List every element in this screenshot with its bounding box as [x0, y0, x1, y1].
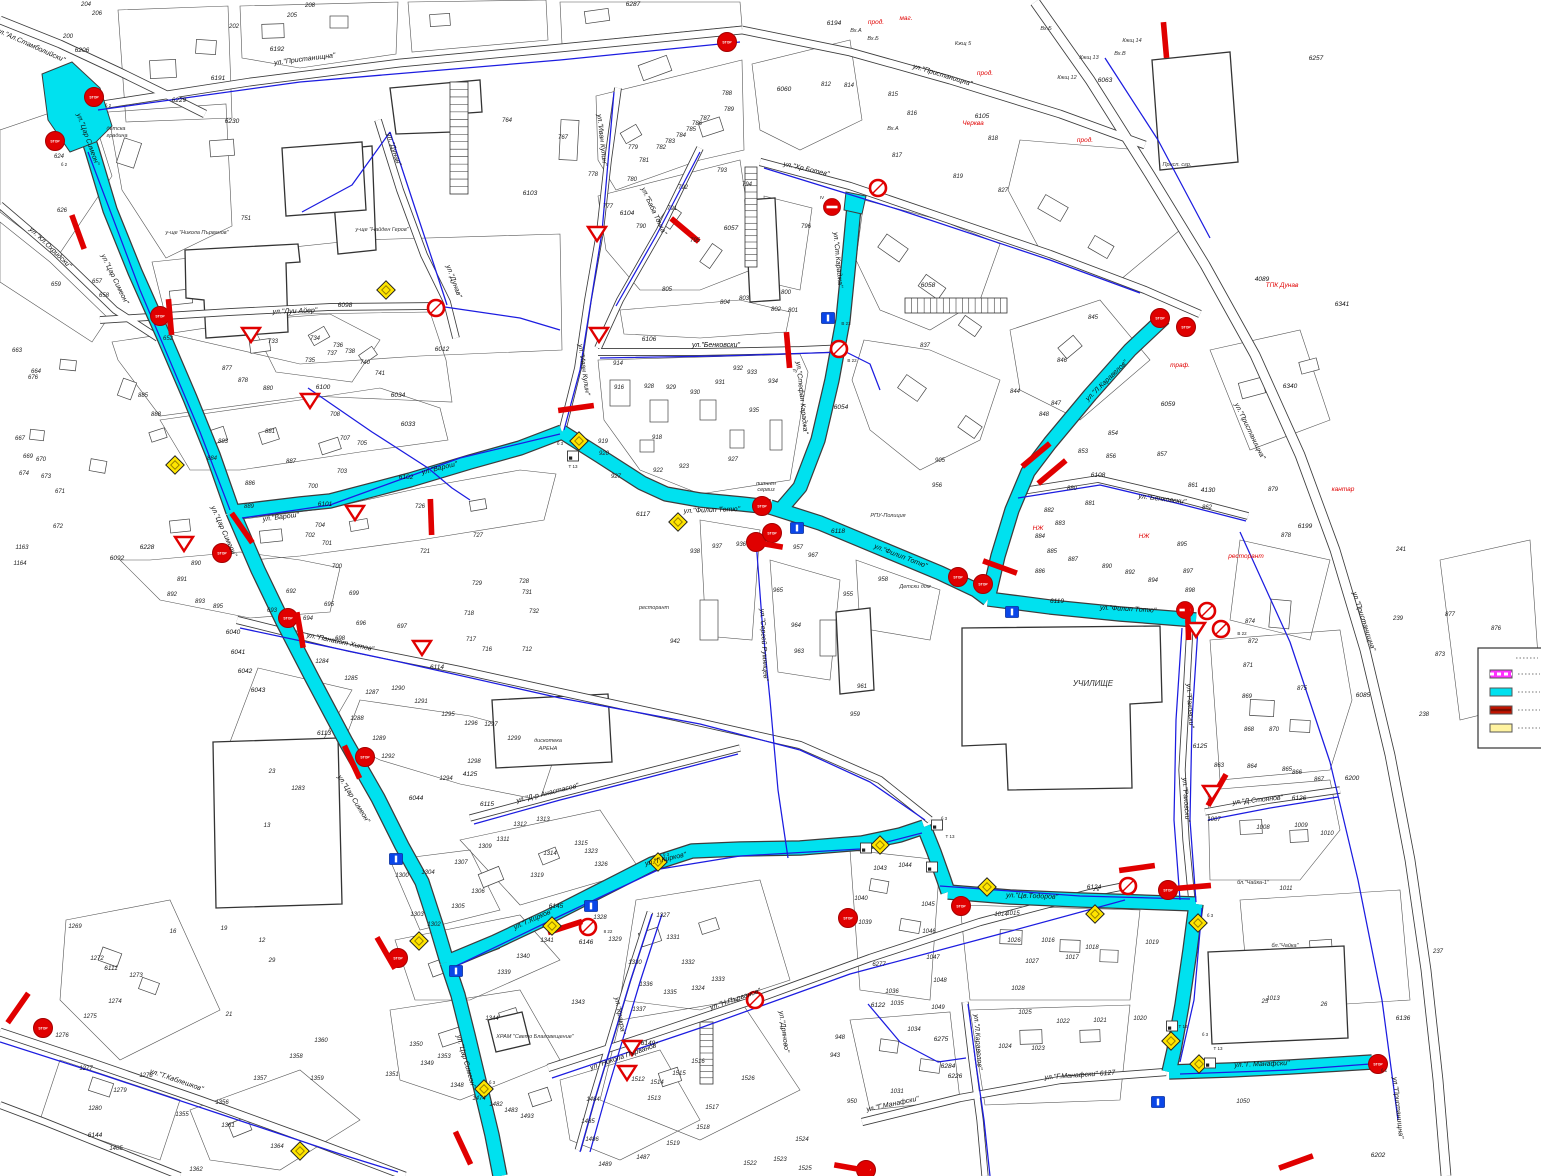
cadastral-code-label: 6034 — [391, 392, 406, 399]
stop-sign-icon: STOP — [34, 1019, 53, 1038]
parcel-number-label: 1512 — [631, 1077, 645, 1083]
parcel-number-label: 1272 — [90, 956, 104, 962]
parcel-number-label: 857 — [1157, 452, 1168, 458]
parcel-number-label: 927 — [728, 457, 739, 463]
parcel-block — [190, 1070, 360, 1170]
sign-annotation-label: б 3 — [941, 816, 948, 821]
cadastral-code-label: 6257 — [1309, 55, 1324, 62]
parcel-number-label: 819 — [953, 174, 964, 180]
cadastral-code-label: 6341 — [1335, 301, 1350, 308]
cadastral-code-label: 6191 — [211, 75, 226, 82]
parcel-number-label: 717 — [466, 637, 477, 643]
cadastral-code-label: 6057 — [724, 225, 739, 232]
building — [770, 420, 782, 450]
parcel-number-label: 781 — [639, 158, 649, 164]
parcel-number-label: 893 — [195, 599, 206, 605]
sign-annotation-label: Т 13 — [568, 464, 578, 469]
road-closure-bar-icon — [1278, 1153, 1314, 1171]
parcel-number-label: 882 — [1044, 508, 1055, 514]
parcel-number-label: 731 — [522, 590, 532, 596]
cadastral-code-label: 6113 — [317, 730, 331, 737]
cadastral-code-label: 6102 — [399, 474, 414, 481]
parcel-number-label: 1285 — [344, 676, 358, 682]
parcel-number-label: 965 — [773, 588, 784, 594]
parcel-number-label: 1514 — [650, 1080, 664, 1086]
large-building — [1208, 946, 1348, 1044]
poi-label: Кжщ 14 — [1122, 38, 1141, 44]
poi-label: градина — [106, 133, 127, 139]
parcel-number-label: 1025 — [1018, 1010, 1032, 1016]
parcel-number-label: 1364 — [270, 1144, 284, 1150]
parcel-number-label: 751 — [241, 216, 251, 222]
parcel-number-label: 816 — [907, 111, 918, 117]
parcel-number-label: 878 — [238, 378, 249, 384]
svg-text:STOP: STOP — [1163, 888, 1173, 892]
cadastral-code-label: 6194 — [827, 20, 842, 27]
poi-label: Кжщ 5 — [955, 41, 972, 47]
large-building — [282, 142, 366, 216]
utility-marker-icon — [1167, 1021, 1178, 1031]
road-closure-bar-icon — [1161, 22, 1170, 58]
poi-red-label: Черква — [962, 120, 984, 127]
parcel-number-label: 671 — [55, 489, 65, 495]
parcel-number-label: 705 — [357, 441, 368, 447]
parcel-number-label: 815 — [888, 92, 899, 98]
parcel-number-label: 704 — [315, 523, 326, 529]
parcel-number-label: 1524 — [795, 1137, 809, 1143]
parcel-number-label: 919 — [598, 439, 609, 445]
parcel-number-label: 845 — [1088, 315, 1099, 321]
building — [898, 375, 927, 402]
parcel-number-label: 237 — [1432, 949, 1444, 955]
no-entry-ring-icon — [1120, 878, 1136, 894]
sign-annotation-label: б 2 — [61, 162, 68, 167]
street-name-label: ул."Сергей Румянцев" — [758, 608, 770, 682]
parcel-number-label: 741 — [375, 371, 385, 377]
svg-text:STOP: STOP — [217, 551, 227, 555]
blue-utility-line — [764, 168, 1140, 293]
parcel-number-label: 1031 — [890, 1089, 903, 1095]
blue-utility-line — [868, 1004, 966, 1062]
parcel-number-label: 1482 — [489, 1102, 503, 1108]
parcel-block — [852, 340, 1000, 470]
parcel-number-label: 867 — [1314, 777, 1325, 783]
parcel-number-label: 783 — [665, 139, 676, 145]
building — [638, 55, 672, 80]
cadastral-code-label: 6144 — [88, 1132, 103, 1139]
stop-sign-icon: STOP — [356, 748, 375, 767]
info-sign-icon — [1006, 607, 1019, 618]
svg-text:STOP: STOP — [283, 616, 293, 620]
parcel-number-label: 1016 — [1041, 938, 1055, 944]
parcel-number-label: 669 — [23, 454, 34, 460]
poi-label: Вх.Б — [1040, 26, 1052, 32]
parcel-number-label: 1312 — [513, 822, 527, 828]
parcel-number-label: 1290 — [391, 686, 405, 692]
parcel-number-label: 692 — [286, 589, 297, 595]
cadastral-code-label: 6199 — [1298, 523, 1313, 530]
poi-red-label: НЖ — [1139, 533, 1151, 540]
parcel-number-label: 735 — [305, 358, 316, 364]
parcel-number-label: 817 — [892, 153, 903, 159]
parcel-number-label: 782 — [656, 145, 667, 151]
poi-label: у-ще "Никола Първанов" — [164, 230, 229, 236]
parcel-number-label: 238 — [1418, 712, 1430, 718]
parcel-number-label: 1483 — [504, 1108, 518, 1114]
parcel-number-label: 1007 — [1207, 817, 1221, 823]
parcel-number-label: 23 — [268, 769, 276, 775]
parcel-number-label: 948 — [835, 1035, 846, 1041]
parcel-number-label: 1332 — [681, 960, 695, 966]
parcel-number-label: 848 — [1039, 412, 1050, 418]
no-entry-ring-icon — [870, 180, 886, 196]
parcel-number-label: 956 — [932, 483, 943, 489]
utility-marker-icon — [861, 843, 872, 853]
building — [620, 124, 642, 143]
poi-red-label: ТПК Дунав — [1266, 282, 1299, 289]
parcel-block — [752, 40, 862, 150]
parcel-number-label: 922 — [653, 468, 664, 474]
parcel-number-label: 700 — [308, 484, 319, 490]
parcel-number-label: 200 — [62, 34, 74, 40]
parcel-number-label: 861 — [1188, 483, 1198, 489]
parcel-number-label: 1344 — [485, 1016, 499, 1022]
poi-label: бл."Чайка" — [1272, 942, 1300, 949]
parcel-number-label: 880 — [263, 386, 274, 392]
stop-sign-icon: STOP — [974, 575, 993, 594]
parcel-number-label: 737 — [327, 351, 338, 357]
sign-annotation-label: б 3 — [489, 1080, 496, 1085]
parcel-number-label: 1021 — [1093, 1018, 1106, 1024]
parcel-number-label: 1284 — [315, 659, 329, 665]
parcel-number-label: 1357 — [253, 1076, 267, 1082]
building — [330, 16, 348, 28]
large-building — [836, 608, 874, 694]
yield-sign-icon — [301, 394, 319, 408]
building — [1100, 950, 1118, 963]
parcel-number-label: 1319 — [530, 873, 544, 879]
parcel-number-label: 1353 — [437, 1054, 451, 1060]
parcel-number-label: 895 — [1177, 542, 1188, 548]
cadastral-code-label: 6044 — [409, 795, 424, 802]
parcel-number-label: 1329 — [608, 937, 622, 943]
poi-red-label: прод. — [868, 18, 884, 26]
parcel-number-label: 1307 — [454, 860, 468, 866]
road-surface — [578, 912, 650, 1150]
poi-red-label: ресторант — [1227, 553, 1264, 560]
parcel-number-label: 6277 — [872, 962, 886, 968]
parcel-number-label: 895 — [213, 604, 224, 610]
parcel-number-label: 1288 — [350, 716, 364, 722]
cadastral-code-label: 6042 — [238, 668, 253, 675]
parcel-number-label: 804 — [720, 300, 731, 306]
parcel-number-label: 880 — [1067, 486, 1078, 492]
parcel-number-label: 1020 — [1133, 1016, 1147, 1022]
sign-annotation-label: Т 13 — [945, 834, 955, 839]
parcel-number-label: 626 — [57, 208, 68, 214]
building — [879, 1039, 898, 1053]
parcel-number-label: 796 — [801, 224, 812, 230]
cadastral-code-label: 6149 — [641, 1040, 656, 1047]
parcel-number-label: 1355 — [175, 1112, 189, 1118]
sign-annotation-label: б 3 — [557, 441, 564, 446]
parcel-number-label: 844 — [1010, 389, 1021, 395]
parcel-number-label: 1023 — [1031, 1046, 1045, 1052]
parcel-number-label: 853 — [1078, 449, 1089, 455]
parcel-number-label: 1043 — [873, 866, 887, 872]
no-entry-ring-icon — [831, 341, 847, 357]
building — [149, 428, 167, 442]
parcel-number-label: 869 — [1242, 694, 1253, 700]
building — [116, 138, 141, 168]
sign-annotation-label: IV — [820, 195, 824, 200]
parcel-number-label: 1022 — [1056, 1019, 1070, 1025]
parcel-number-label: 1485 — [581, 1119, 595, 1125]
parcel-number-label: 1296 — [464, 721, 478, 727]
parcel-number-label: 886 — [1035, 569, 1046, 575]
cadastral-code-label: 6040 — [226, 629, 241, 636]
parcel-number-label: 1009 — [1294, 823, 1308, 829]
poi-label: Кжщ 13 — [1079, 55, 1099, 61]
sign-annotation-label: В 23 — [841, 321, 851, 326]
parcel-number-label: 923 — [679, 464, 690, 470]
sign-annotation-label: В 22 — [1237, 631, 1247, 636]
cadastral-code-label: 6287 — [626, 1, 641, 8]
stop-sign-icon: STOP — [85, 88, 104, 107]
parcel-number-label: 800 — [781, 290, 792, 296]
building — [1299, 358, 1319, 374]
parcel-number-label: 1484 — [586, 1097, 600, 1103]
parcel-number-label: 1035 — [890, 1001, 904, 1007]
parcel-number-label: 1513 — [647, 1096, 661, 1102]
svg-text:STOP: STOP — [843, 916, 853, 920]
parcel-number-label: 732 — [529, 609, 540, 615]
parcel-number-label: 856 — [1106, 454, 1117, 460]
poi-label: бл."Чайка-1" — [1237, 879, 1270, 886]
poi-label: у-ще "Найден Геров" — [354, 226, 409, 233]
poi-label: Вх.В — [1114, 51, 1126, 57]
parcel-number-label: 1474 — [472, 1096, 486, 1102]
parcel-number-label: 1328 — [593, 915, 607, 921]
parcel-number-label: 1349 — [420, 1061, 434, 1067]
parcel-number-label: 764 — [502, 118, 513, 124]
parcel-number-label: 881 — [265, 429, 275, 435]
cadastral-code-label: 6058 — [921, 282, 936, 289]
parcel-number-label: 877 — [222, 366, 233, 372]
cadastral-code-label: 6103 — [523, 190, 538, 197]
parcel-number-label: 1315 — [574, 841, 588, 847]
priority-diamond-icon — [410, 932, 428, 950]
parcel-number-label: 847 — [1051, 401, 1062, 407]
parcel-number-label: 19 — [221, 926, 228, 932]
parcel-number-label: 707 — [340, 436, 351, 442]
parcel-number-label: 870 — [1269, 727, 1280, 733]
parcel-number-label: 738 — [345, 349, 356, 355]
parcel-number-label: 673 — [41, 474, 52, 480]
building — [262, 24, 284, 39]
parcel-number-label: 25 — [1261, 999, 1269, 1005]
parcel-number-label: 790 — [636, 224, 647, 230]
parcel-block — [408, 0, 548, 52]
parcel-number-label: 887 — [1068, 557, 1079, 563]
building — [89, 459, 107, 474]
parcel-number-label: 959 — [850, 712, 861, 718]
parcel-number-label: 767 — [558, 135, 569, 141]
svg-text:STOP: STOP — [953, 575, 963, 579]
parcel-number-label: 1362 — [189, 1167, 203, 1173]
parcel-number-label: 700 — [332, 564, 343, 570]
map-canvas[interactable]: STOPSTOPSTOPSTOPSTOPSTOPSTOPSTOPSTOPSTOP… — [0, 0, 1541, 1176]
parcel-number-label: 872 — [1248, 639, 1259, 645]
info-sign-icon — [390, 854, 403, 865]
parcel-number-label: 241 — [1395, 547, 1406, 553]
cadastral-code-label: 6114 — [430, 664, 444, 671]
parcel-number-label: 1302 — [427, 922, 441, 928]
cadastral-code-label: 6206 — [75, 47, 90, 54]
road-surface — [0, 1032, 405, 1176]
cadastral-code-label: 6340 — [1283, 383, 1298, 390]
parcel-number-label: 868 — [1244, 727, 1255, 733]
parcel-number-label: 1327 — [656, 913, 670, 919]
building — [700, 600, 718, 640]
parcel-number-label: 1360 — [314, 1038, 328, 1044]
parcel-number-label: 1515 — [672, 1071, 686, 1077]
parcel-number-label: 795 — [690, 238, 701, 244]
parcel-number-label: 1047 — [926, 955, 940, 961]
parcel-number-label: 701 — [322, 541, 332, 547]
building — [700, 400, 716, 420]
cadastral-code-label: 6092 — [110, 555, 125, 562]
parcel-number-label: 1343 — [571, 1000, 585, 1006]
poi-red-label: прод. — [1077, 136, 1093, 144]
parcel-number-label: 938 — [690, 549, 701, 555]
parcel-number-label: 873 — [1435, 652, 1446, 658]
stop-sign-icon: STOP — [952, 897, 971, 916]
parcel-number-label: 877 — [1445, 612, 1456, 618]
yield-sign-icon — [346, 506, 364, 520]
city-plan-map[interactable]: STOPSTOPSTOPSTOPSTOPSTOPSTOPSTOPSTOPSTOP… — [0, 0, 1541, 1176]
parcel-number-label: 727 — [473, 533, 484, 539]
stop-sign-icon: STOP — [1151, 309, 1170, 328]
parcel-number-label: 1323 — [584, 849, 598, 855]
sign-annotation-label: б 3 — [1207, 913, 1214, 918]
parcel-number-label: 794 — [742, 182, 753, 188]
cadastral-code-label: 6085 — [1356, 692, 1371, 699]
parcel-number-label: 950 — [847, 1099, 858, 1105]
parcel-number-label: 624 — [54, 154, 65, 160]
svg-text:STOP: STOP — [155, 314, 165, 318]
building — [919, 1059, 940, 1074]
row-parcels — [450, 82, 468, 194]
parcel-number-label: 1356 — [215, 1100, 229, 1106]
building — [730, 430, 744, 448]
parcel-number-label: 778 — [588, 172, 599, 178]
poi-red-label: маг. — [899, 15, 912, 22]
cadastral-code-label: 6101 — [318, 501, 333, 508]
cadastral-code-label: 4125 — [463, 771, 478, 778]
parcel-number-label: 967 — [808, 553, 819, 559]
parcel-number-label: 1048 — [933, 978, 947, 984]
parcel-number-label: 676 — [28, 375, 39, 381]
parcel-number-label: 914 — [613, 361, 624, 367]
cadastral-code-label: 6192 — [270, 46, 285, 53]
parcel-number-label: 789 — [724, 107, 735, 113]
svg-text:STOP: STOP — [393, 956, 403, 960]
legend — [1478, 648, 1541, 748]
cadastral-code-label: 6122 — [871, 1002, 886, 1009]
parcel-number-label: 888 — [151, 412, 162, 418]
parcel-number-label: 943 — [830, 1053, 841, 1059]
poi-label: Детски дом — [898, 584, 930, 590]
road-closure-bar-icon — [5, 992, 30, 1025]
poi-label: РПУ-Полиция — [870, 513, 905, 519]
utility-marker-icon — [932, 820, 943, 830]
parcel-number-label: 1011 — [1280, 886, 1293, 892]
cadastral-code-label: 6054 — [834, 404, 849, 411]
building — [259, 529, 282, 543]
svg-text:STOP: STOP — [757, 504, 767, 508]
road-closure-bar-icon — [1119, 863, 1155, 874]
parcel-number-label: 885 — [1047, 549, 1058, 555]
parcel-number-label: 930 — [690, 390, 701, 396]
building — [878, 234, 908, 262]
parcel-number-label: 801 — [788, 308, 798, 314]
parcel-number-label: 1519 — [666, 1141, 680, 1147]
parcel-number-label: 787 — [700, 116, 711, 122]
parcel-number-label: 16 — [170, 929, 177, 935]
parcel-number-label: 728 — [519, 579, 530, 585]
cadastral-code-label: 6063 — [1098, 77, 1113, 84]
parcel-number-label: 1034 — [907, 1027, 921, 1033]
parcel-number-label: 905 — [935, 458, 946, 464]
poi-red-label: НЖ — [1033, 525, 1045, 532]
street-name-label: ул."Луи Айер" — [271, 306, 318, 316]
cadastral-code-label: 4130 — [1201, 487, 1216, 494]
parcel-number-label: 837 — [920, 343, 931, 349]
poi-red-label: прод. — [977, 69, 993, 77]
stop-sign-icon: STOP — [753, 497, 772, 516]
no-entry-ring-icon — [1199, 603, 1215, 619]
utility-marker-icon — [568, 451, 579, 461]
parcel-number-label: 881 — [1085, 501, 1095, 507]
parcel-number-label: 1278 — [139, 1073, 153, 1079]
svg-text:STOP: STOP — [360, 755, 370, 759]
svg-text:STOP: STOP — [978, 582, 988, 586]
parcel-number-label: 672 — [53, 524, 64, 530]
poi-label: Присп. сгр. — [1163, 162, 1192, 168]
parcel-number-label: 694 — [303, 616, 314, 622]
parcel-number-label: 1518 — [696, 1125, 710, 1131]
yield-sign-icon — [175, 537, 193, 551]
parcel-number-label: 1517 — [705, 1105, 719, 1111]
parcel-number-label: 1306 — [471, 889, 485, 895]
building — [169, 519, 190, 533]
parcel-number-label: 1036 — [885, 989, 899, 995]
poi-label: дискотека — [534, 738, 562, 744]
parcel-number-label: 885 — [138, 393, 149, 399]
svg-text:STOP: STOP — [767, 531, 777, 535]
parcel-number-label: 886 — [245, 481, 256, 487]
road-closure-bar-icon — [453, 1131, 473, 1166]
poi-label: ресторант — [638, 605, 670, 611]
street-name-label: ул."Пристанищна" — [1391, 1076, 1405, 1140]
cyan-street-varosh-w — [233, 432, 562, 512]
road-closure-bar-icon — [69, 214, 87, 250]
parcel-number-label: 958 — [878, 577, 889, 583]
parcel-number-label: 1024 — [998, 1044, 1012, 1050]
street-name-label: ул."Пристанищна" — [1232, 401, 1266, 461]
legend-swatch — [1490, 688, 1512, 696]
